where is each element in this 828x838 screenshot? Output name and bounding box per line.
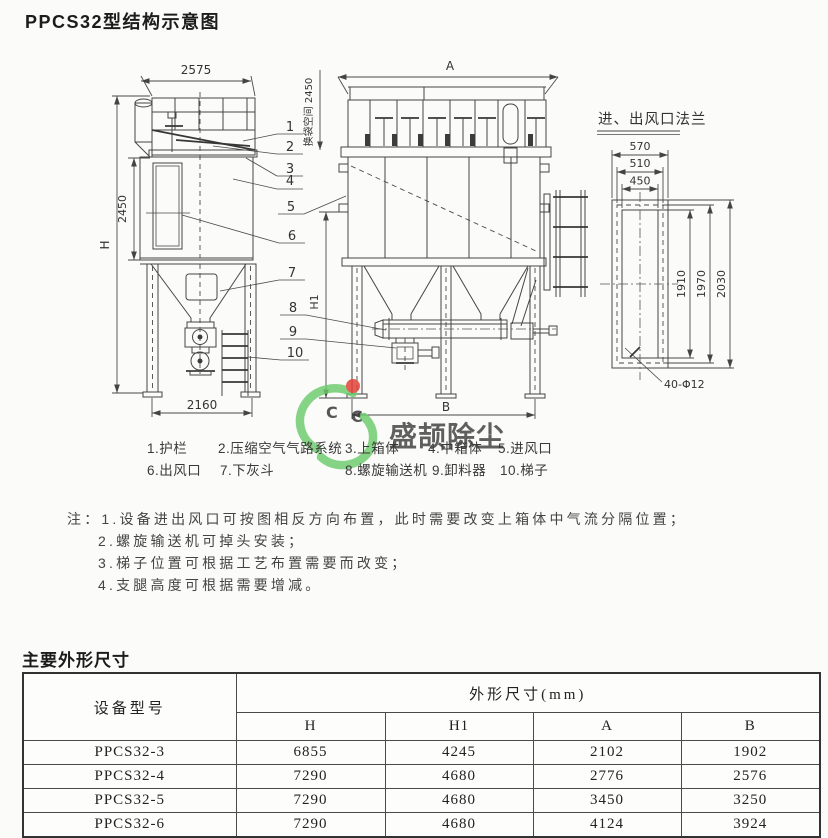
callout-5: 5 bbox=[287, 200, 295, 215]
legend-item-7: 7.下灰斗 bbox=[220, 459, 274, 479]
table-row: PPCS32-4 7290 4680 2776 2576 bbox=[23, 765, 820, 789]
dimensions-table: 设备型号 外形尺寸(mm) H H1 A B PPCS32-3 6855 424… bbox=[22, 672, 821, 838]
watermark-red-dot bbox=[346, 379, 360, 393]
watermark-letter-1: C bbox=[326, 403, 338, 422]
callout-4: 4 bbox=[286, 174, 294, 189]
table-row: PPCS32-6 7290 4680 4124 3924 bbox=[23, 813, 820, 838]
legend-item-10: 10.梯子 bbox=[500, 459, 548, 479]
table-header-A: A bbox=[533, 713, 681, 741]
flange-title: 进、出风口法兰 bbox=[598, 111, 707, 128]
structure-diagram: 2575 H 2450 2160 1 2 3 4 5 6 7 bbox=[0, 0, 828, 470]
dim-2450: 2450 bbox=[116, 195, 129, 223]
model-cell: PPCS32-6 bbox=[23, 813, 236, 838]
dim-570: 570 bbox=[630, 140, 651, 153]
dim-1970: 1970 bbox=[695, 270, 708, 298]
legend-item-5: 5.进风口 bbox=[498, 437, 552, 457]
legend-item-8: 8.螺旋输送机 bbox=[345, 459, 427, 479]
dim-B: B bbox=[442, 400, 450, 414]
table-header-dims-group: 外形尺寸(mm) bbox=[236, 673, 820, 713]
dim-H: H bbox=[98, 240, 112, 249]
dim-2575: 2575 bbox=[181, 63, 212, 77]
legend-item-1: 1.护栏 bbox=[147, 437, 187, 457]
table-row: PPCS32-3 6855 4245 2102 1902 bbox=[23, 741, 820, 765]
legend-item-2: 2.压缩空气气路系统 bbox=[218, 437, 342, 457]
callout-9: 9 bbox=[289, 325, 297, 340]
callout-1: 1 bbox=[286, 120, 294, 135]
legend-item-6: 6.出风口 bbox=[147, 459, 201, 479]
callout-8: 8 bbox=[289, 301, 297, 316]
note-line-2: 2.螺旋输送机可掉头安装； bbox=[98, 530, 687, 552]
notes-label: 注： bbox=[67, 508, 101, 530]
legend-item-3: 3.上箱体 bbox=[345, 437, 399, 457]
legend-item-4: 4.中箱体 bbox=[428, 437, 482, 457]
table-row: PPCS32-5 7290 4680 3450 3250 bbox=[23, 789, 820, 813]
model-cell: PPCS32-5 bbox=[23, 789, 236, 813]
side-view-drawing bbox=[135, 92, 260, 397]
note-line-3: 3.梯子位置可根据工艺布置需要而改变； bbox=[98, 552, 687, 574]
dim-2160: 2160 bbox=[187, 398, 218, 412]
note-line-4: 4.支腿高度可根据需要增减。 bbox=[98, 574, 687, 596]
front-view-dimensions: A 换袋空间 2450 H1 B bbox=[302, 59, 558, 419]
note-line-1: 1.设备进出风口可按图相反方向布置，此时需要改变上箱体中气流分隔位置； bbox=[101, 508, 687, 530]
watermark-letter-2: C bbox=[351, 407, 363, 426]
table-header-model: 设备型号 bbox=[23, 673, 236, 741]
model-cell: PPCS32-3 bbox=[23, 741, 236, 765]
section-title-dimensions: 主要外形尺寸 bbox=[22, 646, 130, 671]
front-view-drawing bbox=[339, 87, 588, 398]
dim-H1: H1 bbox=[308, 294, 321, 309]
callout-6: 6 bbox=[288, 229, 296, 244]
flange-holes-note: 40-Φ12 bbox=[664, 378, 705, 391]
table-header-H: H bbox=[236, 713, 385, 741]
legend-item-9: 9.卸料器 bbox=[432, 459, 486, 479]
dim-510: 510 bbox=[630, 157, 651, 170]
dim-A: A bbox=[446, 59, 455, 73]
dim-2030: 2030 bbox=[715, 270, 728, 298]
table-header-H1: H1 bbox=[385, 713, 533, 741]
notes-block: 注： 1.设备进出风口可按图相反方向布置，此时需要改变上箱体中气流分隔位置； 2… bbox=[67, 508, 687, 596]
dim-450: 450 bbox=[630, 175, 651, 188]
model-cell: PPCS32-4 bbox=[23, 765, 236, 789]
flange-detail-drawing: 进、出风口法兰 570 510 450 1910 1970 2030 bbox=[597, 111, 734, 391]
dim-bag-change-space: 换袋空间 2450 bbox=[302, 78, 315, 147]
table-header-B: B bbox=[681, 713, 820, 741]
callout-7: 7 bbox=[288, 266, 296, 281]
callout-2: 2 bbox=[286, 140, 294, 155]
dim-1910: 1910 bbox=[675, 270, 688, 298]
callout-10: 10 bbox=[287, 346, 304, 361]
